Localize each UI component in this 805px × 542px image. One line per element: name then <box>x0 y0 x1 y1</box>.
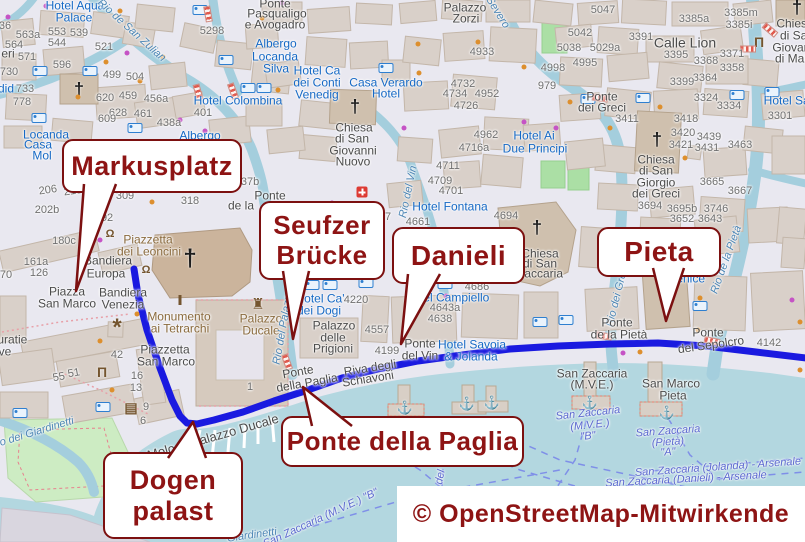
map-label: 180c <box>52 236 76 248</box>
map-label: Bandiera <box>84 255 132 268</box>
map-label: (M.V.E.) <box>571 379 614 392</box>
map-label: 6 <box>140 416 146 428</box>
map-label: 4726 <box>454 101 478 113</box>
callout-danieli: Danieli <box>392 227 525 284</box>
map-label: 3421 <box>669 140 693 152</box>
map-label: Hotel San <box>764 95 805 108</box>
map-label: Due Principi <box>503 143 568 156</box>
map-label: 9 <box>143 402 149 414</box>
map-label: 730 <box>0 67 18 79</box>
callout-ponte-della-paglia: Ponte della Paglia <box>281 416 524 467</box>
map-label: 3694 <box>638 201 662 213</box>
map-label: 3399 <box>670 77 694 89</box>
map-label: Hotel <box>372 88 400 101</box>
map-label: 596 <box>53 60 71 72</box>
map-label: Severo <box>483 0 511 31</box>
map-label: del Vin <box>402 350 438 363</box>
map-label: Zorzi <box>453 13 480 26</box>
map-label: 4952 <box>475 89 499 101</box>
map-label: 3420 <box>671 128 695 140</box>
map-label: 42 <box>111 350 123 362</box>
map-label: 3667 <box>728 186 752 198</box>
map-label: 620 <box>96 93 114 105</box>
map-label: 3652 <box>670 214 694 226</box>
callout-pieta: Pieta <box>597 227 721 277</box>
map-label: 3463 <box>728 140 752 152</box>
map-label: 499 <box>103 70 121 82</box>
map-label: 318 <box>181 196 199 208</box>
map-label: Nuove <box>0 346 11 359</box>
map-label: de la <box>228 200 254 213</box>
map-label: 456a <box>144 94 168 106</box>
map-label: 3364 <box>693 73 717 85</box>
map-label: "B" <box>580 430 596 443</box>
map-label: 4716a <box>459 143 490 155</box>
map-label: ai Tetrarchi <box>151 323 209 336</box>
map-label: 3411 <box>615 114 639 126</box>
map-label: 126 <box>30 268 48 280</box>
map-label: Palace <box>56 12 93 25</box>
map-label: Ducale <box>242 325 279 338</box>
map-label: 401 <box>194 108 212 120</box>
map-label: 4933 <box>470 47 494 59</box>
map-label: 3371 <box>720 49 744 61</box>
map-label: Hotel Ai <box>513 130 554 143</box>
map-label: 571 <box>18 52 36 64</box>
callout-dogen-line1: Dogen <box>130 465 217 495</box>
map-label: Prigioni <box>313 343 353 356</box>
map-label: 3301 <box>768 111 792 123</box>
map-label: 979 <box>538 81 556 93</box>
map-label: 5298 <box>200 26 224 38</box>
map-label: Venedig <box>295 89 338 102</box>
map-label: Albergo <box>255 38 296 51</box>
map-label: 3418 <box>674 114 698 126</box>
map-label: 438a <box>157 118 181 130</box>
callout-seufzer-line1: Seufzer <box>273 211 370 240</box>
map-label: 539 <box>70 28 88 40</box>
map-label: de la Pietà <box>591 329 648 342</box>
map-label: Pieta <box>659 390 686 403</box>
map-label: 4998 <box>541 63 565 75</box>
map-label: 3643 <box>698 214 722 226</box>
map-label: 3385i <box>726 20 753 32</box>
map-label: 36 <box>0 21 11 33</box>
map-label: 3395 <box>664 50 688 62</box>
map-label: San Zaccaria (M.V.E.) "B" <box>262 487 381 542</box>
map-label: 70 <box>0 270 12 282</box>
map-label: 3385m <box>724 8 758 20</box>
map-label: Hotel Fontana <box>412 201 487 214</box>
map-label: 55 <box>52 371 66 384</box>
map-label: San Marco <box>137 356 195 369</box>
map-label: did <box>0 83 14 96</box>
map-label: Venezia <box>102 299 145 312</box>
map-label: 292 <box>95 213 113 225</box>
map-label: 4711 <box>436 161 460 173</box>
map-label: e Avogadro <box>245 19 306 32</box>
map-label: 4220 <box>344 295 368 307</box>
map-label: 3368 <box>694 56 718 68</box>
map-label: 4701 <box>439 186 463 198</box>
callout-dogen-line2: palast <box>132 496 213 526</box>
map-label: 5029a <box>590 43 621 55</box>
map-label: 544 <box>48 38 66 50</box>
map-label: 4142 <box>757 338 781 350</box>
map-label: 3358 <box>720 63 744 75</box>
map-label: 4962 <box>474 130 498 142</box>
map-label: 461 <box>134 109 152 121</box>
map-label: 3324 <box>694 93 718 105</box>
map-label: dei Greci <box>632 188 680 201</box>
map-label: 1 <box>247 382 253 394</box>
map-label: 5047 <box>591 5 615 17</box>
map-label: 4995 <box>573 58 597 70</box>
map-label: 3665 <box>700 177 724 189</box>
map-label: & Jolanda <box>444 351 497 364</box>
map-label: 206 <box>38 184 58 198</box>
callout-markusplatz: Markusplatz <box>62 139 242 193</box>
callout-pieta-label: Pieta <box>624 236 693 267</box>
map-label: Hotel Colombina <box>194 95 283 108</box>
map-label: San Marco <box>38 298 96 311</box>
map-label: 3334 <box>717 101 741 113</box>
map-label: 5042 <box>568 28 592 40</box>
map-label: 16 <box>131 371 143 383</box>
map-label: Silva <box>263 63 289 76</box>
map-label: 3385a <box>679 14 710 26</box>
callout-markusplatz-label: Markusplatz <box>71 151 233 181</box>
map-label: 609 <box>98 114 116 126</box>
map-label: di Malta <box>775 53 805 66</box>
map-label: Calle Lion <box>654 36 716 51</box>
map-label: dei Dogi <box>297 305 341 318</box>
callout-seufzer-line2: Brücke <box>276 241 367 270</box>
map-label: 4638 <box>428 314 452 326</box>
map-label: 564 <box>5 40 23 52</box>
map-label: 504 <box>126 72 144 84</box>
map-label: Europa <box>87 268 126 281</box>
map-label: 3391 <box>629 32 653 44</box>
map-label: 51 <box>67 367 81 380</box>
callout-danieli-label: Danieli <box>411 240 506 271</box>
map-viewport[interactable]: †††††††ΠΠ♜*▤ΩΩ⚓⚓⚓⚓⚓ Hotel AquaPalaceRio … <box>0 0 805 542</box>
map-label: 4694 <box>494 211 518 223</box>
attribution-text: © OpenStreetMap-Mitwirkende <box>413 500 789 529</box>
map-label: 202b <box>35 205 59 217</box>
map-label: 5038 <box>557 43 581 55</box>
map-label: "A" <box>660 447 676 460</box>
map-label: Rio de San Zulian <box>95 0 168 65</box>
map-label: 13 <box>130 383 142 395</box>
map-label: 4557 <box>365 325 389 337</box>
callout-paglia-label: Ponte della Paglia <box>287 427 519 456</box>
callout-dogenpalast: Dogen palast <box>103 452 243 539</box>
map-label: Rio dei Giardinetti <box>0 416 75 453</box>
attribution-box: © OpenStreetMap-Mitwirkende <box>397 486 805 542</box>
map-label: 3431 <box>695 143 719 155</box>
map-label: 4199 <box>375 346 399 358</box>
map-label: Nuovo <box>336 156 371 169</box>
map-label: 459 <box>119 91 137 103</box>
map-label: 778 <box>13 97 31 109</box>
map-label: 521 <box>95 42 113 54</box>
map-label: del Sepolcro <box>677 334 745 356</box>
callout-seufzer-bruecke: Seufzer Brücke <box>259 201 385 280</box>
map-label: 733 <box>16 84 34 96</box>
map-label: 4734 <box>443 89 467 101</box>
map-label: Mol <box>32 150 51 163</box>
